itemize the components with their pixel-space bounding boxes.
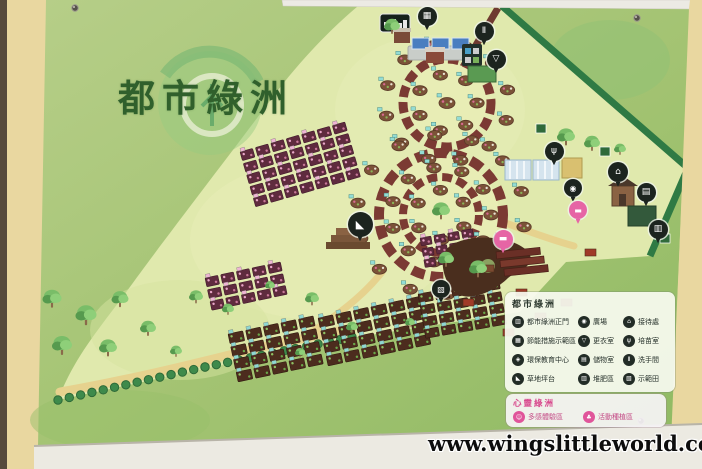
plaza-pin: ◉: [564, 179, 582, 197]
plaza-icon: ◉: [578, 316, 590, 328]
energy-demo-area-icon: ▦: [512, 335, 524, 347]
sign-photo: 都市綠洲 ▦Ⅱ▽◣ψ⌂▤▥▧◉▬▬ 都市綠洲 ▥都市綠洲正門▦節能措施示範區◈環…: [0, 0, 702, 469]
storage-pin: ▤: [637, 183, 656, 202]
legend-mind-items: ☺多感體驗區♣活動種植區: [513, 411, 659, 423]
legend-item-reception: ⌂接待處: [623, 312, 668, 331]
legend-label: 環保教育中心: [527, 355, 569, 365]
legend-item-activity-planting-area: ♣活動種植區: [583, 411, 633, 423]
legend-mind-title: 心靈綠洲: [513, 397, 659, 409]
planting-pin: ▬: [569, 201, 587, 219]
changing-room-icon: ▽: [578, 335, 590, 347]
legend-label: 廣場: [593, 317, 607, 327]
legend-label: 接待處: [638, 317, 659, 327]
left-dark-edge: [0, 0, 7, 469]
legend-label: 更衣室: [593, 336, 614, 346]
legend-label: 草地坪台: [527, 374, 555, 384]
legend-item-restroom: Ⅱ洗手間: [623, 350, 668, 369]
legend-label: 洗手間: [638, 355, 659, 365]
solar-panel-pin: ▦: [418, 7, 437, 26]
nursery-pin: ψ: [545, 142, 564, 161]
legend-item-eco-education-center: ◈環保教育中心: [512, 350, 578, 369]
lawn-platform-icon: ◣: [512, 373, 524, 385]
changing-room-pin: ▽: [487, 50, 506, 69]
compost-area-icon: ▥: [578, 373, 590, 385]
legend-item-energy-demo-area: ▦節能措施示範區: [512, 331, 578, 350]
reception-pin: ⌂: [608, 162, 628, 182]
legend-mind-box: 心靈綠洲 ☺多感體驗區♣活動種植區: [506, 394, 666, 427]
multi-sensory-area-icon: ☺: [513, 411, 525, 423]
legend-items: ▥都市綠洲正門▦節能措施示範區◈環保教育中心◣草地坪台◉廣場▽更衣室▤儲物室▥堆…: [512, 312, 668, 388]
legend-item-demo-field: ▧示範田: [623, 369, 668, 388]
legend-label: 都市綠洲正門: [527, 317, 569, 327]
activity-planting-area-icon: ♣: [583, 411, 595, 423]
demo-field-icon: ▧: [623, 373, 635, 385]
watermark-text: www.wingslittleworld.com: [428, 431, 702, 456]
legend-item-compost-area: ▥堆肥區: [578, 369, 623, 388]
legend-label: 活動種植區: [598, 412, 633, 422]
reception-icon: ⌂: [623, 316, 635, 328]
eco-education-center-icon: ◈: [512, 354, 524, 366]
compost-pin: ▥: [649, 220, 668, 239]
legend-box: 都市綠洲 ▥都市綠洲正門▦節能措施示範區◈環保教育中心◣草地坪台◉廣場▽更衣室▤…: [505, 292, 675, 392]
legend-label: 節能措施示範區: [527, 336, 576, 346]
legend-item-lawn-platform: ◣草地坪台: [512, 369, 578, 388]
legend-label: 示範田: [638, 374, 659, 384]
lawn-platform-pin: ◣: [348, 212, 373, 237]
legend-item-nursery-room: ψ培苗室: [623, 331, 668, 350]
restroom-pin: Ⅱ: [475, 22, 494, 41]
sensory-pin: ▬: [494, 230, 513, 249]
legend-item-main-gate: ▥都市綠洲正門: [512, 312, 578, 331]
legend-label: 多感體驗區: [528, 412, 563, 422]
yellow-building: [562, 158, 582, 178]
legend-item-storage-room: ▤儲物室: [578, 350, 623, 369]
legend-label: 培苗室: [638, 336, 659, 346]
nursery-room-icon: ψ: [623, 335, 635, 347]
legend-label: 儲物室: [593, 355, 614, 365]
legend-label: 堆肥區: [593, 374, 614, 384]
green-building: [468, 66, 496, 82]
storage-room-icon: ▤: [578, 354, 590, 366]
legend-main-title: 都市綠洲: [512, 297, 668, 310]
main-gate-icon: ▥: [512, 316, 524, 328]
legend-item-multi-sensory-area: ☺多感體驗區: [513, 411, 563, 423]
legend-item-changing-room: ▽更衣室: [578, 331, 623, 350]
demo-field-pin: ▧: [432, 280, 450, 298]
board-title: 都市綠洲: [118, 68, 294, 122]
restroom-icon: Ⅱ: [623, 354, 635, 366]
legend-item-plaza: ◉廣場: [578, 312, 623, 331]
